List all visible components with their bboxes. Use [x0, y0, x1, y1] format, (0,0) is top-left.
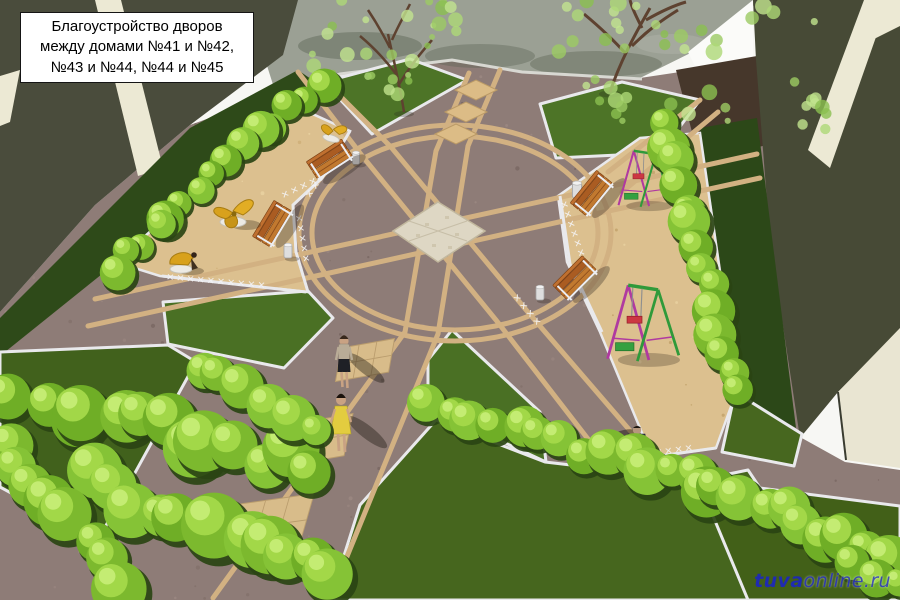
- plan-title-line-2: между домами №41 и №42,: [23, 37, 251, 57]
- watermark-bold: tuva: [754, 570, 803, 592]
- plan-title-line-3: №43 и №44, №44 и №45: [23, 58, 251, 78]
- courtyard-3d-render: ✕✕✕✕✕✕✕✕✕✕✕✕✕✕✕✕✕✕✕✕✕✕✕✕✕✕✕✕✕✕✕✕✕✕✕✕✕✕✕: [0, 0, 900, 600]
- child-figure: [191, 252, 197, 258]
- plan-title-box: Благоустройство дворов между домами №41 …: [20, 12, 254, 83]
- watermark-light: online.ru: [804, 570, 891, 592]
- plan-title-line-1: Благоустройство дворов: [23, 17, 251, 37]
- site-watermark: tuvaonline.ru: [754, 570, 891, 592]
- render-viewport: ✕✕✕✕✕✕✕✕✕✕✕✕✕✕✕✕✕✕✕✕✕✕✕✕✕✕✕✕✕✕✕✕✕✕✕✕✕✕✕: [0, 0, 900, 600]
